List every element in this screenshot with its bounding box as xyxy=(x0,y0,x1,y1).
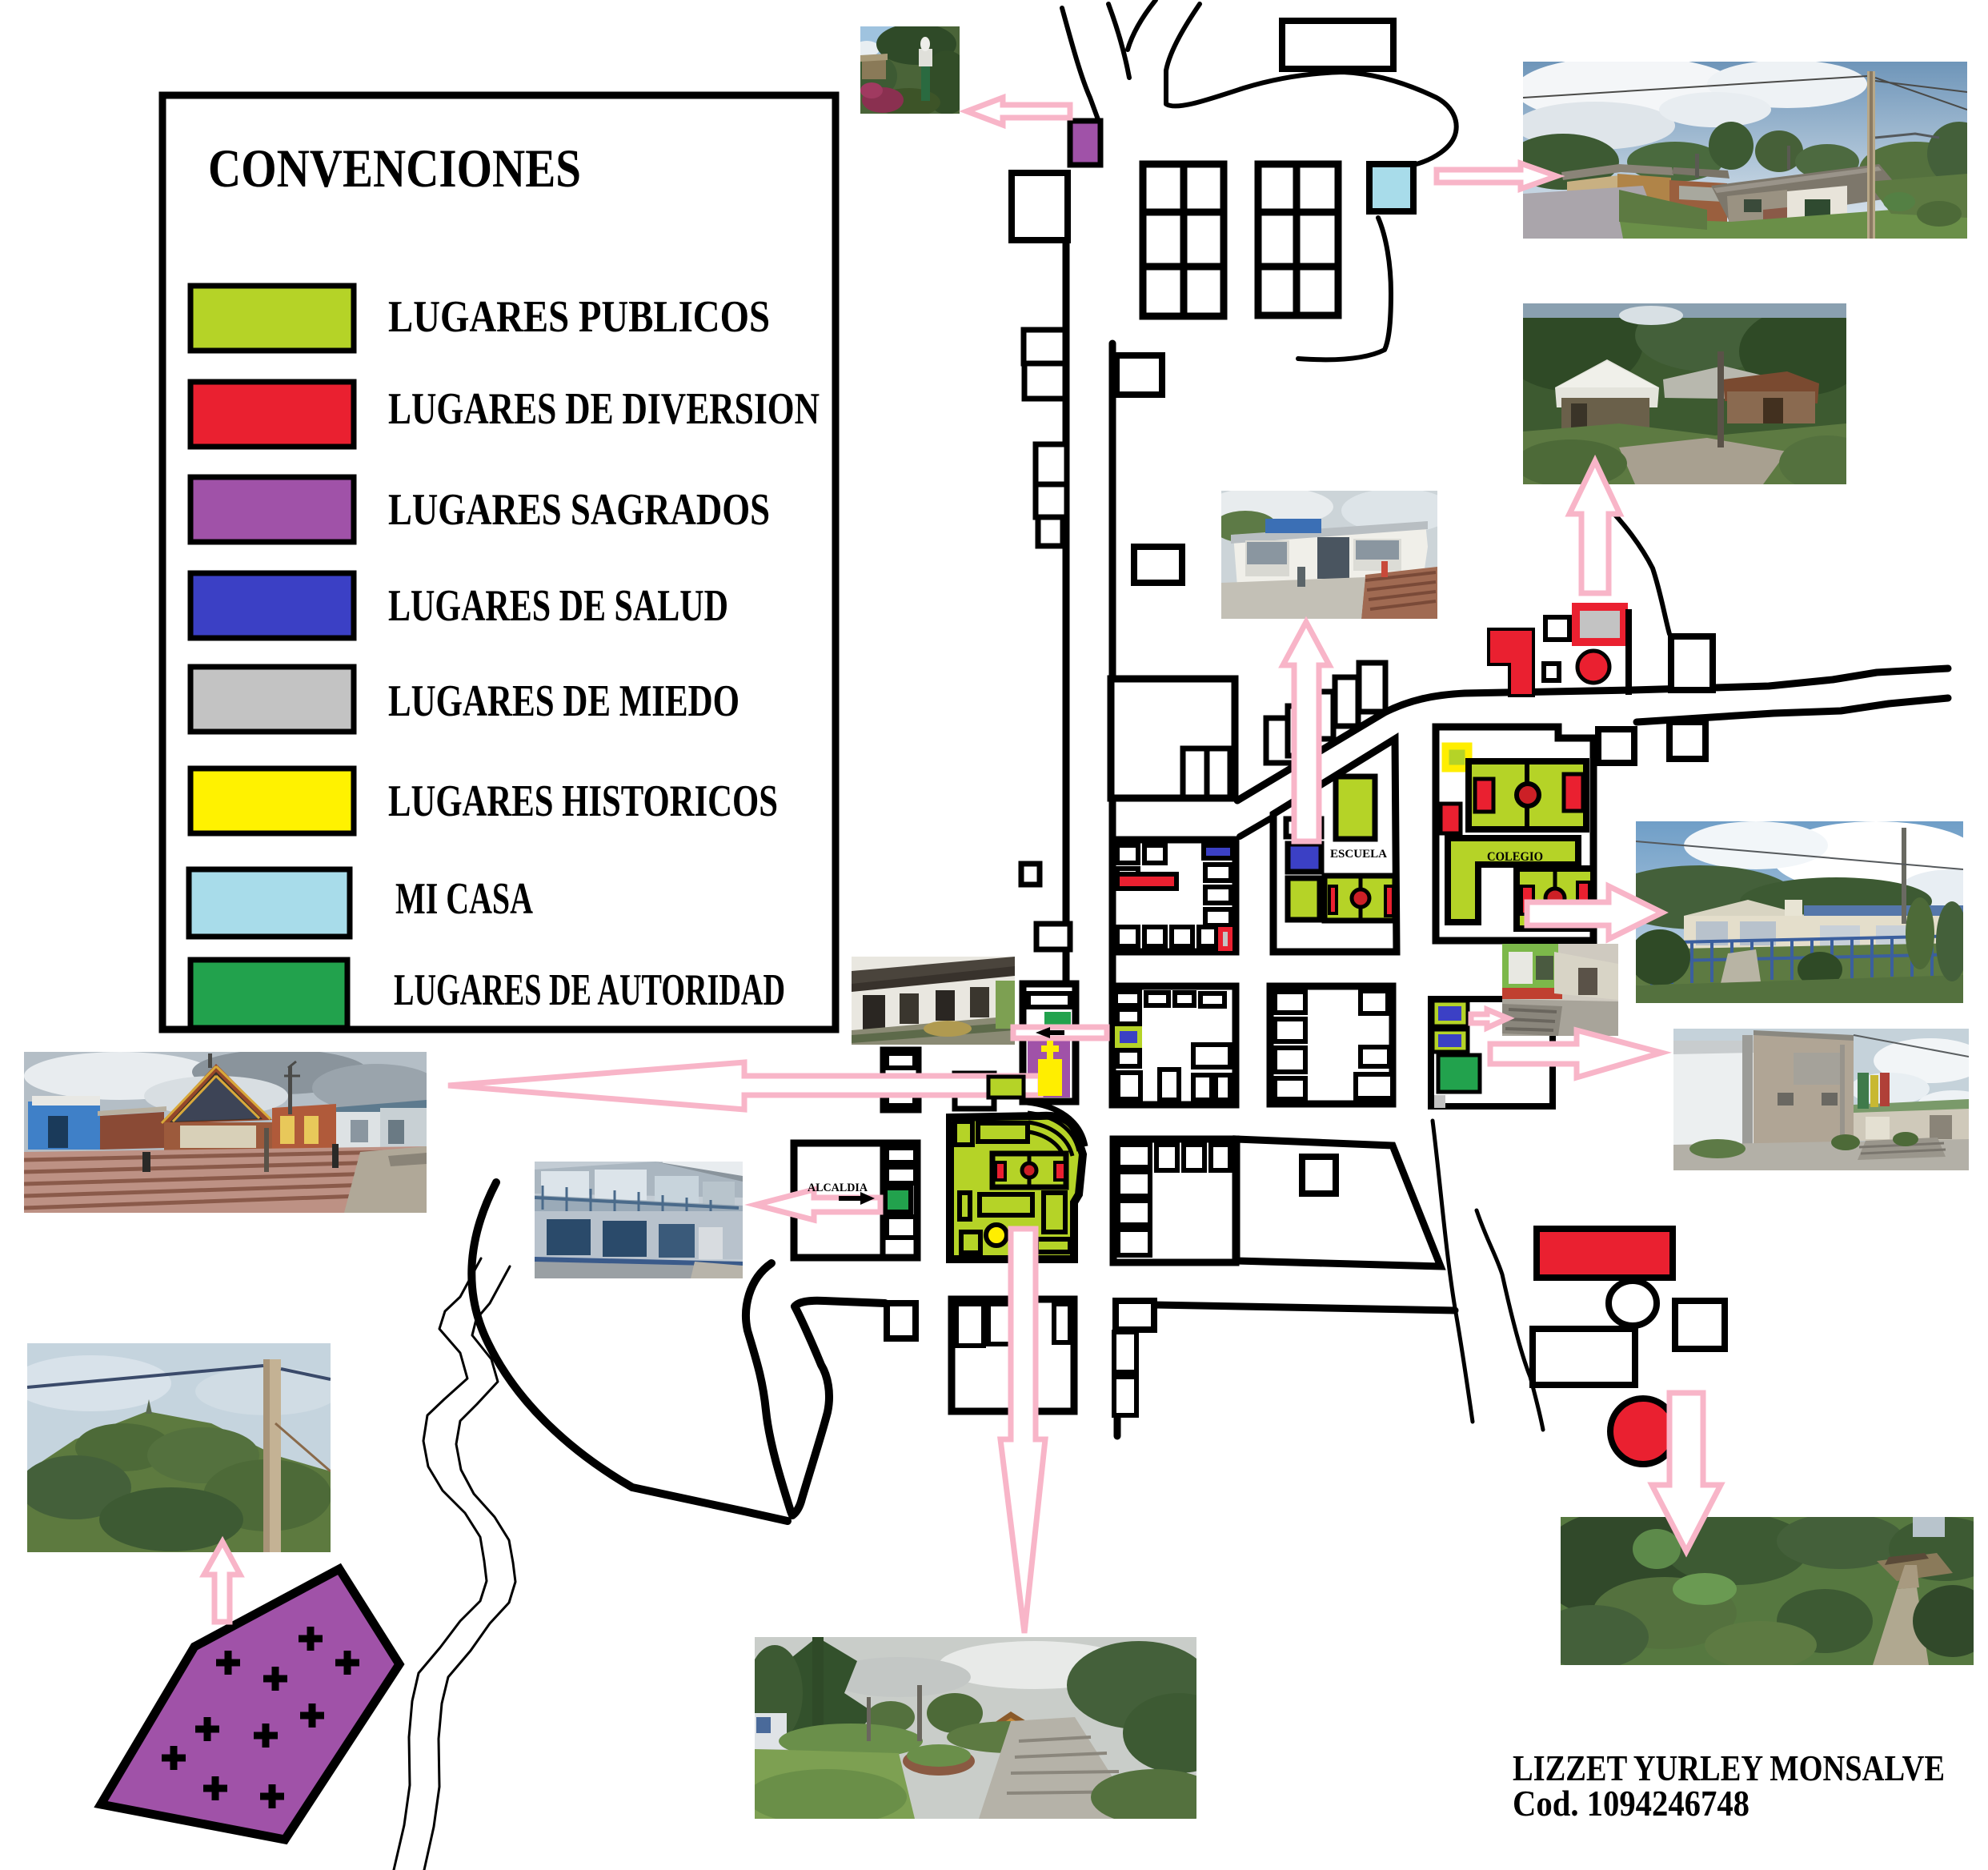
svg-text:LUGARES SAGRADOS: LUGARES SAGRADOS xyxy=(388,485,770,535)
svg-text:LUGARES PUBLICOS: LUGARES PUBLICOS xyxy=(388,292,770,342)
svg-text:LUGARES DE DIVERSION: LUGARES DE DIVERSION xyxy=(388,384,820,434)
svg-text:COLEGIO: COLEGIO xyxy=(1487,850,1543,864)
svg-text:ESCUELA: ESCUELA xyxy=(1330,848,1387,861)
svg-text:CONVENCIONES: CONVENCIONES xyxy=(208,138,581,199)
svg-text:LUGARES HISTORICOS: LUGARES HISTORICOS xyxy=(388,776,778,826)
svg-text:MI CASA: MI CASA xyxy=(395,874,533,924)
svg-text:Cod. 1094246748: Cod. 1094246748 xyxy=(1513,1783,1750,1824)
svg-text:LUGARES DE SALUD: LUGARES DE SALUD xyxy=(388,581,728,631)
svg-text:LUGARES DE AUTORIDAD: LUGARES DE AUTORIDAD xyxy=(394,965,785,1015)
svg-text:LUGARES DE MIEDO: LUGARES DE MIEDO xyxy=(388,676,739,726)
svg-text:ALCALDIA: ALCALDIA xyxy=(808,1182,868,1194)
